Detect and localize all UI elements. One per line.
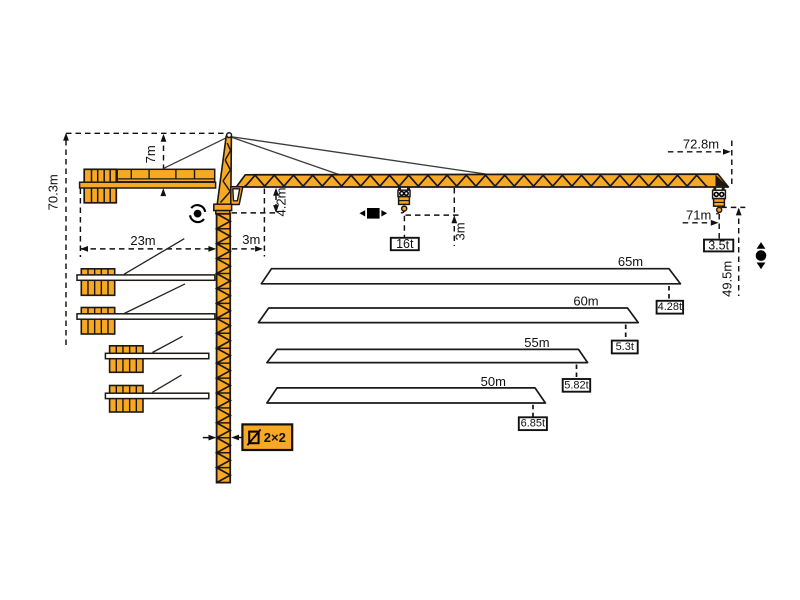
svg-text:5.3t: 5.3t [616,341,634,353]
svg-text:5.82t: 5.82t [564,379,588,391]
svg-text:23m: 23m [130,233,155,248]
svg-text:72.8m: 72.8m [683,136,719,151]
svg-text:65m: 65m [618,254,643,269]
svg-text:60m: 60m [573,294,598,309]
svg-text:16t: 16t [396,237,414,251]
svg-text:4.2m: 4.2m [273,188,288,217]
svg-text:49.5m: 49.5m [720,261,735,297]
svg-text:70.3m: 70.3m [45,174,60,210]
svg-text:7m: 7m [143,145,158,163]
svg-text:50m: 50m [481,374,506,389]
svg-text:4.28t: 4.28t [658,301,682,313]
svg-text:3m: 3m [242,232,260,247]
svg-text:6.85t: 6.85t [521,418,545,430]
svg-text:3m: 3m [452,222,467,240]
svg-text:2×2: 2×2 [264,430,286,445]
svg-text:3.5t: 3.5t [708,239,729,253]
svg-text:55m: 55m [524,335,549,350]
svg-text:71m: 71m [686,207,711,222]
